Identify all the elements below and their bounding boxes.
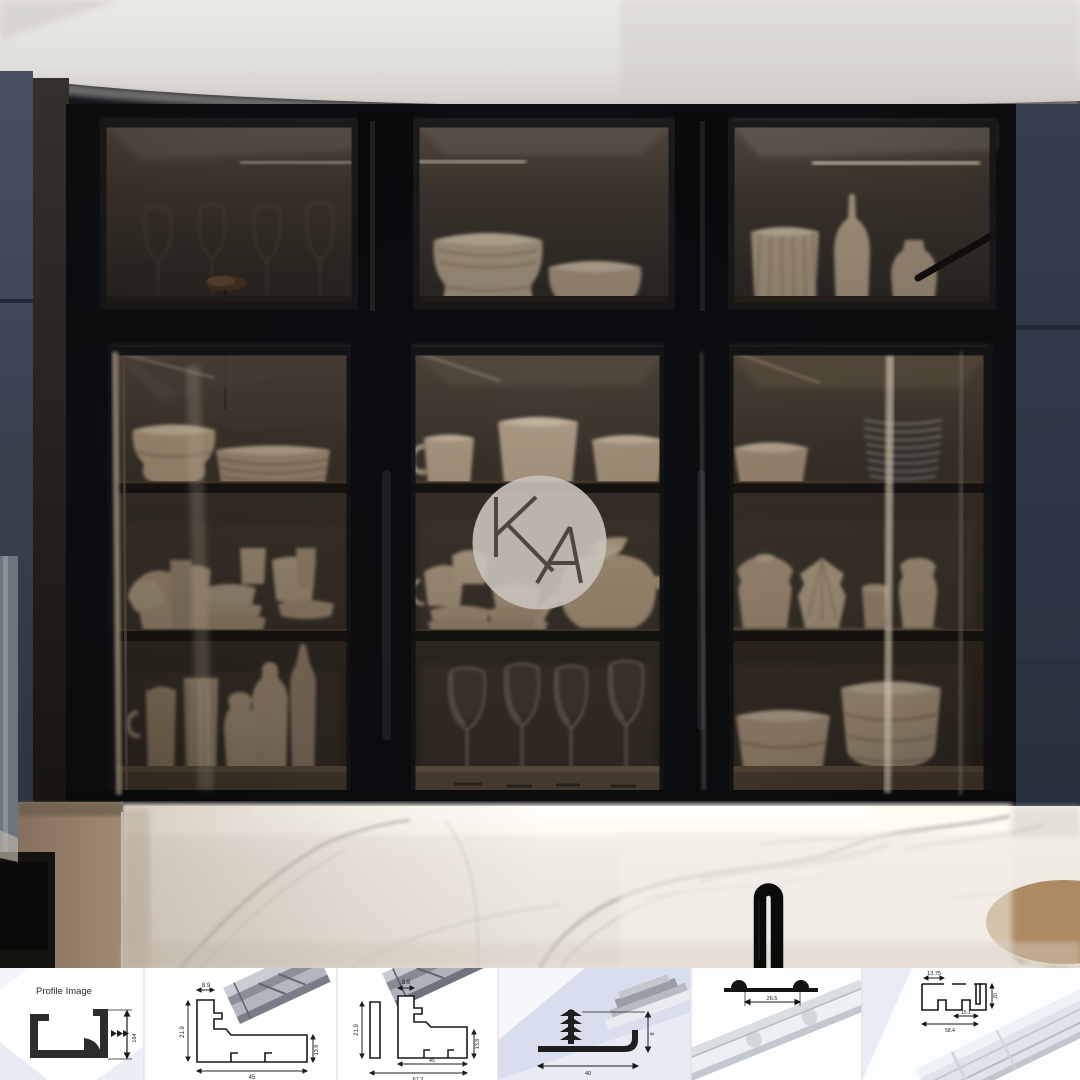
svg-text:26.5: 26.5 xyxy=(767,996,778,1002)
svg-text:21.9: 21.9 xyxy=(354,1024,360,1036)
svg-text:20: 20 xyxy=(993,993,999,999)
svg-text:15.1: 15.1 xyxy=(961,1010,971,1016)
svg-text:13.8: 13.8 xyxy=(314,1045,320,1056)
svg-text:40: 40 xyxy=(585,1071,591,1077)
svg-text:21.9: 21.9 xyxy=(180,1026,186,1038)
svg-text:164: 164 xyxy=(132,1033,138,1042)
svg-text:9: 9 xyxy=(650,1032,656,1035)
svg-text:13.8: 13.8 xyxy=(475,1039,481,1050)
svg-text:8.5: 8.5 xyxy=(402,980,411,986)
svg-text:45: 45 xyxy=(429,1058,435,1064)
svg-text:45: 45 xyxy=(249,1075,256,1080)
svg-text:58.4: 58.4 xyxy=(945,1028,955,1034)
svg-text:Profile Image: Profile Image xyxy=(36,986,92,997)
svg-text:8.9: 8.9 xyxy=(202,983,211,989)
svg-text:13.75: 13.75 xyxy=(927,971,941,977)
